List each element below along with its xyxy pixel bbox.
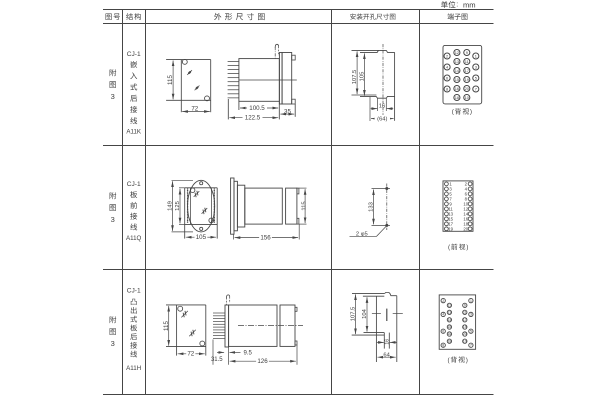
svg-text:5: 5 (470, 329, 472, 333)
svg-text:8: 8 (442, 343, 444, 347)
svg-text:105: 105 (360, 72, 366, 82)
svg-text:16: 16 (384, 339, 390, 345)
svg-text:11: 11 (463, 310, 467, 314)
svg-text:19: 19 (465, 77, 469, 82)
svg-text:3: 3 (470, 313, 472, 317)
svg-text:19: 19 (448, 226, 453, 231)
svg-text:A11K: A11K (126, 128, 142, 135)
svg-text:3: 3 (475, 64, 477, 69)
svg-text:4: 4 (446, 64, 449, 69)
svg-text:17: 17 (465, 68, 469, 73)
svg-text:3: 3 (111, 92, 115, 101)
svg-text:3: 3 (111, 339, 115, 348)
svg-text:133: 133 (369, 202, 375, 212)
svg-text:13: 13 (448, 310, 452, 314)
svg-text:6: 6 (442, 329, 444, 333)
svg-text:(64): (64) (377, 117, 387, 123)
svg-text:17: 17 (463, 318, 467, 322)
svg-text:72: 72 (191, 105, 198, 112)
svg-text:2: 2 (442, 299, 444, 303)
svg-text:18: 18 (455, 95, 459, 100)
svg-text:CJ-1: CJ-1 (127, 181, 141, 188)
svg-text::: : (456, 2, 458, 9)
svg-text:CJ-1: CJ-1 (127, 51, 141, 58)
svg-text:3: 3 (111, 215, 115, 224)
svg-text:125: 125 (175, 201, 181, 211)
svg-text:115: 115 (163, 321, 170, 331)
svg-text:12: 12 (448, 303, 452, 307)
svg-text:): ) (470, 109, 472, 116)
svg-text:9.5: 9.5 (244, 350, 253, 356)
svg-text:115: 115 (167, 75, 174, 85)
svg-text:2: 2 (446, 53, 448, 58)
svg-text:5: 5 (475, 75, 477, 80)
svg-text:18: 18 (448, 339, 452, 343)
svg-text:14: 14 (448, 318, 452, 322)
svg-text:9: 9 (464, 303, 466, 307)
svg-text:7: 7 (470, 343, 472, 347)
svg-text:64: 64 (383, 352, 390, 358)
svg-text:A11Q: A11Q (126, 235, 142, 242)
svg-text:A11H: A11H (126, 365, 141, 372)
svg-text:(: ( (448, 357, 451, 364)
svg-text:(: ( (452, 109, 455, 116)
svg-text:126: 126 (257, 358, 268, 365)
svg-text:): ) (466, 357, 468, 364)
svg-text:10: 10 (463, 339, 467, 343)
svg-text:35: 35 (284, 108, 291, 115)
svg-text:107.5: 107.5 (352, 70, 358, 85)
svg-text:mm: mm (463, 0, 476, 9)
svg-text:9: 9 (466, 50, 468, 55)
svg-text:6: 6 (446, 75, 448, 80)
svg-text:CJ-1: CJ-1 (127, 287, 141, 294)
svg-text:8: 8 (446, 86, 448, 91)
svg-text:1: 1 (470, 299, 472, 303)
svg-text:19: 19 (463, 325, 467, 329)
svg-text:16: 16 (379, 104, 385, 110)
svg-text:20: 20 (463, 332, 467, 336)
svg-text:(: ( (448, 244, 451, 251)
svg-text:4: 4 (442, 313, 444, 317)
svg-text:149: 149 (168, 201, 174, 211)
svg-text:15: 15 (455, 77, 459, 82)
svg-text:156: 156 (260, 235, 271, 242)
svg-text:15: 15 (448, 325, 452, 329)
svg-text:16: 16 (448, 332, 452, 336)
svg-text:): ) (466, 244, 468, 251)
svg-text:16: 16 (455, 86, 459, 91)
svg-text:104: 104 (362, 308, 368, 318)
svg-text:105: 105 (196, 234, 207, 241)
svg-text:13: 13 (455, 59, 459, 64)
svg-text:72: 72 (187, 351, 194, 358)
svg-text:1: 1 (475, 53, 477, 58)
svg-text:20: 20 (463, 226, 468, 231)
svg-text:107.5: 107.5 (351, 307, 357, 322)
svg-text:100.5: 100.5 (249, 105, 265, 112)
svg-text:7: 7 (475, 86, 477, 91)
svg-text:12: 12 (455, 50, 459, 55)
svg-text:11: 11 (465, 59, 469, 64)
svg-text:122.5: 122.5 (245, 115, 261, 122)
svg-text:115: 115 (301, 201, 307, 210)
